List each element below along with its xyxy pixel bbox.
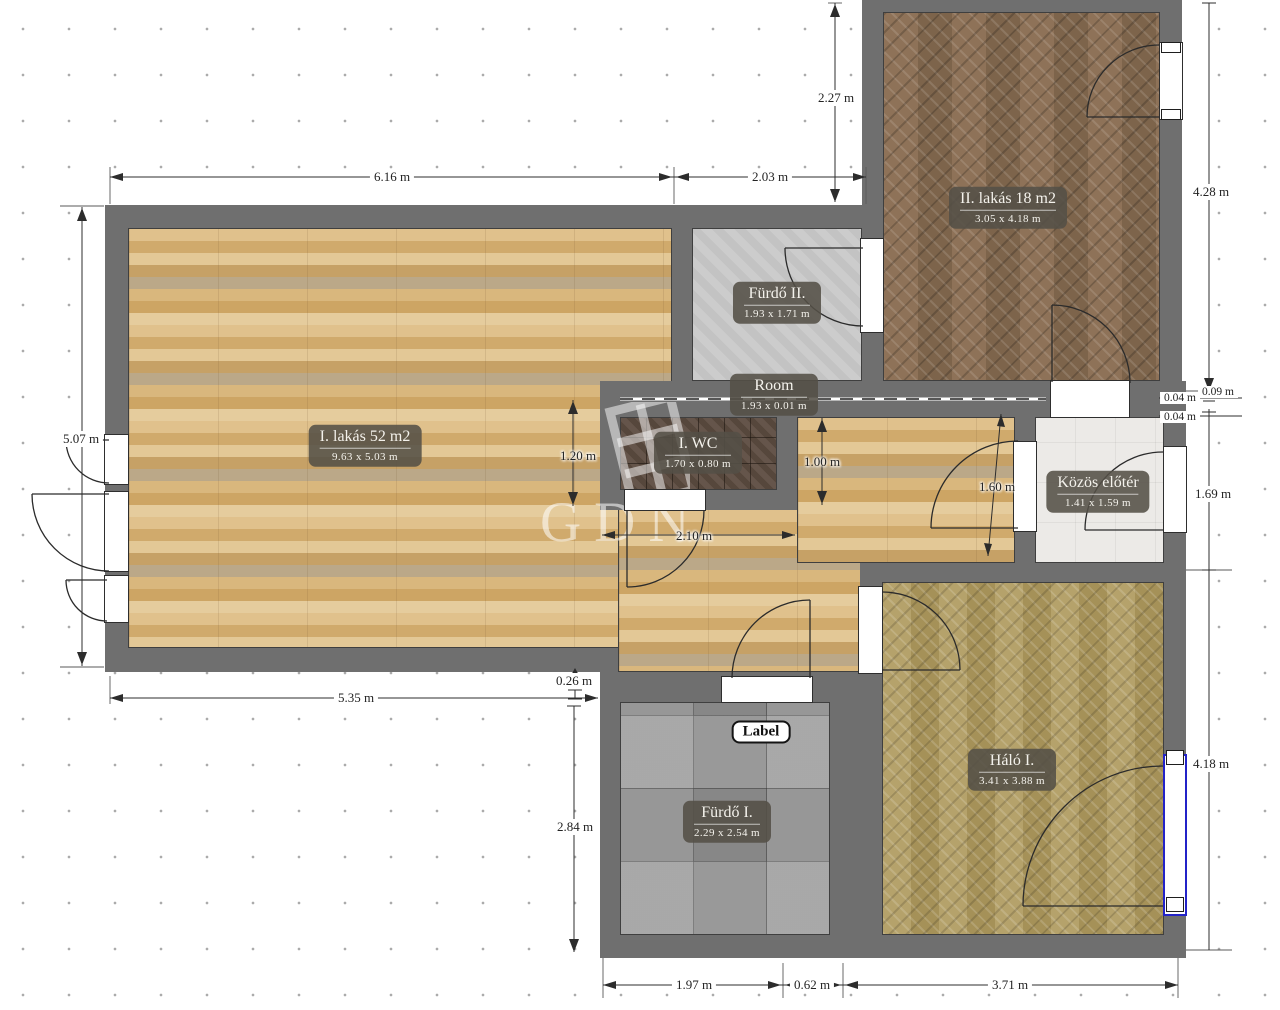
wall-segment: [105, 648, 618, 672]
room-label-i-lakas[interactable]: I. lakás 52 m2 9.63 x 5.03 m: [309, 425, 422, 467]
dim-0-26: 0.26 m: [552, 673, 596, 689]
wall-segment: [860, 563, 1015, 582]
room-size: 9.63 x 5.03 m: [320, 448, 411, 463]
door-furdo-i[interactable]: [721, 676, 813, 703]
dim-2-10: 2.10 m: [676, 528, 712, 544]
room-size: 2.29 x 2.54 m: [694, 824, 760, 839]
dim-1-20: 1.20 m: [560, 448, 596, 464]
dim-2-03: 2.03 m: [748, 169, 792, 185]
dim-6-16: 6.16 m: [370, 169, 414, 185]
dim-0-62: 0.62 m: [790, 977, 834, 993]
wall-segment: [600, 935, 1186, 958]
room-size: 3.41 x 3.88 m: [979, 772, 1045, 787]
door-i-lakas-left-1[interactable]: [104, 434, 129, 485]
wall-segment: [600, 672, 620, 958]
door-i-wc[interactable]: [624, 489, 706, 511]
room-size: 3.05 x 4.18 m: [960, 210, 1056, 225]
room-label-furdo-ii[interactable]: Fürdő II. 1.93 x 1.71 m: [733, 282, 821, 324]
dim-0-09: 0.09 m: [1198, 386, 1238, 398]
room-label-ii-lakas[interactable]: II. lakás 18 m2 3.05 x 4.18 m: [949, 187, 1067, 229]
room-title: Fürdő II.: [744, 285, 810, 303]
door-halo-i[interactable]: [858, 586, 883, 674]
wall-segment: [672, 228, 692, 381]
window-frame-tab: [1166, 897, 1184, 912]
room-title: Közös előtér: [1057, 474, 1138, 492]
window-frame-tab: [1166, 750, 1184, 765]
dim-2-27: 2.27 m: [814, 90, 858, 106]
room-size: 1.70 x 0.80 m: [665, 455, 731, 470]
door-kozos-right[interactable]: [1163, 446, 1187, 533]
door-i-lakas-left-2[interactable]: [104, 491, 129, 572]
room-title: I. lakás 52 m2: [320, 428, 411, 446]
dim-3-71: 3.71 m: [988, 977, 1032, 993]
window-halo-i-selected[interactable]: [1163, 754, 1187, 916]
wall-segment: [830, 702, 882, 935]
door-frame-tab: [1161, 109, 1181, 120]
room-label-kozos-eloter[interactable]: Közös előtér 1.41 x 1.59 m: [1046, 471, 1149, 513]
room-title: II. lakás 18 m2: [960, 190, 1056, 208]
room-title: Fürdő I.: [694, 804, 760, 822]
dim-2-84: 2.84 m: [553, 819, 597, 835]
door-furdo-ii[interactable]: [860, 238, 884, 333]
door-kozos-left[interactable]: [1013, 441, 1037, 532]
room-size: 1.93 x 1.71 m: [744, 305, 810, 320]
dim-4-28: 4.28 m: [1189, 184, 1233, 200]
door-ii-lakas-inner[interactable]: [1050, 380, 1130, 418]
door-frame-tab: [1161, 42, 1181, 53]
wall-segment: [1015, 563, 1186, 582]
dim-1-97: 1.97 m: [672, 977, 716, 993]
dim-1-00: 1.00 m: [804, 454, 840, 470]
room-label-halo-i[interactable]: Háló I. 3.41 x 3.88 m: [968, 749, 1056, 791]
dim-4-18: 4.18 m: [1189, 756, 1233, 772]
room-title: Room: [741, 377, 807, 395]
wall-segment: [862, 0, 1182, 12]
dim-1-60: 1.60 m: [979, 479, 1015, 495]
dim-5-07: 5.07 m: [59, 431, 103, 447]
door-i-lakas-left-3[interactable]: [104, 575, 129, 623]
room-label-room[interactable]: Room 1.93 x 0.01 m: [730, 374, 818, 416]
room-label-i-wc[interactable]: I. WC 1.70 x 0.80 m: [654, 432, 742, 474]
floorplan-canvas: GDN: [0, 0, 1280, 1010]
label-badge[interactable]: Label: [732, 721, 791, 744]
room-title: I. WC: [665, 435, 731, 453]
room-label-furdo-i[interactable]: Fürdő I. 2.29 x 2.54 m: [683, 801, 771, 843]
dim-0-04-a: 0.04 m: [1160, 392, 1200, 404]
dim-0-04-b: 0.04 m: [1160, 411, 1200, 423]
dim-5-35: 5.35 m: [334, 690, 378, 706]
room-size: 1.41 x 1.59 m: [1057, 494, 1138, 509]
wall-segment: [105, 205, 866, 228]
room-size: 1.93 x 0.01 m: [741, 397, 807, 412]
dim-1-69: 1.69 m: [1191, 486, 1235, 502]
room-title: Háló I.: [979, 752, 1045, 770]
wall-segment-room: [600, 381, 1050, 417]
